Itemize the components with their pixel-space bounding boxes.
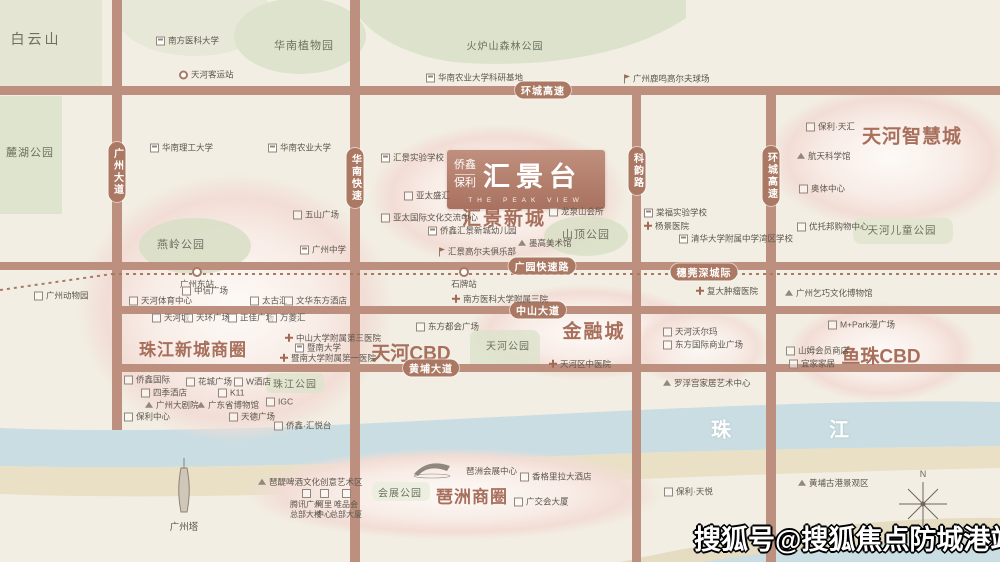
poi-label: 汇景实验学校 [393,154,444,163]
poi-label: 华南理工大学 [162,144,213,153]
poi-label: 暨南大学 [307,344,341,353]
park-label: 天河儿童公园 [868,223,937,238]
logo-brand-bottom: 保利 [454,177,476,190]
poi-label: 杨景医院 [655,222,689,231]
poi-label: 天河体育中心 [141,297,192,306]
poi-label: 华南农业大学科研基地 [438,74,523,83]
station-marker [459,267,469,277]
poi: 南方医科大学 [156,37,219,46]
poi-label: 琶醍啤酒文化创意艺术区 [269,478,363,487]
building-icon [293,211,302,220]
landmark-icon [663,380,671,386]
poi-label: K11 [230,389,245,398]
building-icon [266,398,275,407]
poi-label: 山姆会员商店 [798,347,849,356]
poi: 亚太国际文化交流中心 [381,214,478,223]
poi-label: 侨鑫汇景新城幼儿园 [440,227,517,236]
poi: 保利·天悦 [664,488,713,497]
poi: 天环广场 [184,314,230,323]
poi-label: 棠福实验学校 [656,209,707,218]
poi: 侨鑫汇景新城幼儿园 [428,227,517,236]
building-icon [664,488,673,497]
district-label: 天河智慧城 [862,122,962,149]
road-label-pill: 中山大道 [510,302,566,319]
poi: 复大肿瘤医院 [696,287,758,296]
poi-label: 广州鹿鸣高尔夫球场 [633,75,710,84]
poi: 天河区中医院 [549,360,611,369]
school-icon [295,344,304,353]
poi: 东方都会广场 [416,323,479,332]
road-label-pill: 穗莞深城际 [671,264,738,281]
poi-label: 南方医科大学附属三院 [463,295,548,304]
poi-label: 侨鑫·汇悦台 [286,422,331,431]
building-icon [218,389,227,398]
hospital-icon [644,222,652,230]
poi: 奥体中心 [799,185,845,194]
poi-label: W酒店 [246,378,271,387]
school-icon [150,144,159,153]
building-icon [186,378,195,387]
river-name-label: 江 [829,414,851,443]
poi: 中山大学附属第三医院 [285,334,381,343]
poi-label: 奥体中心 [811,185,845,194]
poi-label: 四季酒店 [153,389,187,398]
poi: 琶洲会展中心 [466,467,517,476]
park-label: 白云山 [11,29,62,49]
poi: 暨南大学 [295,344,341,353]
building-icon [549,208,558,217]
poi-label: 五山广场 [305,211,339,220]
building-icon [141,389,150,398]
building-icon [268,314,277,323]
landmark-icon [798,480,806,486]
station-marker [192,267,202,277]
landmark-icon [197,402,205,408]
watermark: 搜狐号@搜狐焦点防城港站 [694,518,1000,557]
poi-label: 暨南大学附属第一医院 [291,354,376,363]
building-icon [797,223,806,232]
school-icon [644,209,653,218]
poi: 广州乞巧文化博物馆 [785,289,873,298]
poi: K11 [218,389,245,398]
poi-label: 黄埔古港景观区 [809,479,869,488]
building-icon [828,321,837,330]
landmark-icon [797,153,805,159]
location-map: 侨鑫 保利 汇景台 THE PEAK VIEW N 搜狐号@搜狐焦点防城港站 汇… [0,0,1000,562]
building-icon [416,323,425,332]
poi: M+Park漫广场 [828,321,895,330]
hospital-icon [696,287,704,295]
hospital-icon [549,360,557,368]
station-label: 石牌站 [451,278,477,290]
poi: 天河客运站 [179,71,234,80]
compass-north-label: N [920,469,927,479]
building-icon [234,378,243,387]
school-icon [428,227,437,236]
building-icon [182,287,191,296]
poi: 优托邦购物中心 [797,223,869,232]
poi-label: 香格里拉大酒店 [532,473,592,482]
road-label-pill: 环城高速 [763,146,780,206]
school-icon [300,246,309,255]
poi: 宜家家居 [789,360,835,369]
district-label: 琶洲商圈 [436,483,508,508]
poi: 香格里拉大酒店 [520,473,592,482]
poi-label: 侨鑫国际 [136,376,170,385]
poi-label: 航天科学馆 [808,152,851,161]
road-label-pill: 华南快速 [347,148,364,208]
poi-label: 南方医科大学 [168,37,219,46]
building-icon [789,360,798,369]
poi-label: 复大肿瘤医院 [707,287,758,296]
poi: 暨南大学附属第一医院 [280,354,376,363]
road-label-pill: 科韵路 [629,147,646,195]
park-label: 燕岭公园 [157,236,205,252]
landmark-icon [518,240,526,246]
poi: 山姆会员商店 [786,347,849,356]
logo-brand-top: 侨鑫 [454,159,476,172]
building-icon [284,297,293,306]
building-icon [663,328,672,337]
project-logo: 侨鑫 保利 汇景台 THE PEAK VIEW [447,150,605,209]
building-icon [786,347,795,356]
poi: 天德广场 [229,413,275,422]
park-label: 火炉山森林公园 [467,38,544,53]
district-label: 鱼珠CBD [841,342,920,369]
poi-label: 天德广场 [241,413,275,422]
golf-icon [437,248,445,257]
poi-label: M+Park漫广场 [840,321,895,330]
poi: 航天科学馆 [797,152,851,161]
poi-label: 优托邦购物中心 [809,223,869,232]
poi-label: 广州动物园 [46,292,89,301]
poi: 侨鑫国际 [124,376,170,385]
poi: 中信广场 [182,287,228,296]
park-label: 华南植物园 [274,37,334,53]
poi-label: 宜家家居 [801,360,835,369]
poi: 五山广场 [293,211,339,220]
road-label-pill: 广州大道 [109,142,126,202]
building-icon [229,413,238,422]
building-icon [381,214,390,223]
road-label-pill: 黄埔大道 [403,360,459,377]
building-icon [228,314,237,323]
building-icon [184,314,193,323]
road-label-pill: 广园快速路 [509,258,576,275]
logo-project-name: 汇景台 [483,155,582,194]
poi: 保利中心 [124,413,170,422]
poi: 清华大学附属中学湾区学校 [679,235,793,244]
park-label: 麓湖公园 [6,144,54,160]
building-icon [302,489,311,498]
building-icon [152,314,161,323]
poi: 广东省博物馆 [197,401,259,410]
poi: 汇景高尔夫俱乐部 [437,248,516,257]
poi: 南方医科大学附属三院 [452,295,548,304]
poi-label: 琶洲会展中心 [466,467,517,476]
poi-label: 中信广场 [194,287,228,296]
poi-label: 花城广场 [198,378,232,387]
park-label: 天河公园 [486,338,530,353]
poi-label: 广州乞巧文化博物馆 [796,289,873,298]
poi-label: 墨高美术馆 [529,239,572,248]
poi: 华南农业大学 [268,144,331,153]
building-icon [34,292,43,301]
hospital-icon [285,334,293,342]
building-icon [250,297,259,306]
poi: 墨高美术馆 [518,239,572,248]
poi-label: 天环广场 [196,314,230,323]
poi: 汇景实验学校 [381,154,444,163]
poi: 太古汇 [250,297,288,306]
poi-label: 东方国际商业广场 [675,341,743,350]
poi-label: 东方都会广场 [428,323,479,332]
building-icon [124,376,133,385]
poi-label: 汇景高尔夫俱乐部 [448,248,516,257]
poi: W酒店 [234,378,271,387]
poi-label: 文华东方酒店 [296,297,347,306]
poi: 文华东方酒店 [284,297,347,306]
building-icon [520,473,529,482]
poi-label: 保利·天悦 [676,488,713,497]
park-label: 会展公园 [378,485,422,500]
landmark-icon [258,479,266,485]
poi: 杨景医院 [644,222,689,231]
building-icon [124,413,133,422]
poi: 华南农业大学科研基地 [426,74,523,83]
landmark-icon [785,290,793,296]
golf-icon [622,75,630,84]
school-icon [381,154,390,163]
hospital-icon [280,354,288,362]
poi-label: 保利·天汇 [818,123,855,132]
building-icon [799,185,808,194]
poi-label: 唯品会 总部大厦 [330,500,362,521]
poi-label: 万菱汇 [280,314,306,323]
district-label: 金融城 [562,317,625,344]
poi-label: 清华大学附属中学湾区学校 [691,235,793,244]
poi: 花城广场 [186,378,232,387]
building-icon [663,341,672,350]
poi-label: 天河客运站 [191,71,234,80]
poi: 广州大剧院 [145,401,199,410]
school-icon [156,37,165,46]
poi-label: 亚太盛汇 [416,192,450,201]
school-icon [679,235,688,244]
building-icon [342,489,351,498]
park-label: 珠江公园 [273,376,317,391]
poi: 侨鑫·汇悦台 [274,422,331,431]
poi: IGC [266,398,293,407]
district-label: 珠江新城商圈 [139,336,247,361]
poi: 广州鹿鸣高尔夫球场 [622,75,710,84]
road-label-pill: 环城高速 [515,82,571,99]
poi: 棠福实验学校 [644,209,707,218]
poi: 广交会大厦 [514,498,569,507]
building-icon [320,489,329,498]
poi: 亚太盛汇 [404,192,450,201]
poi: 龙泉山会所 [549,208,604,217]
poi: 四季酒店 [141,389,187,398]
school-icon [426,74,435,83]
poi: 华南理工大学 [150,144,213,153]
poi: 黄埔古港景观区 [798,479,869,488]
building-icon [806,123,815,132]
poi-label: 广东省博物馆 [208,401,259,410]
poi-label: 保利中心 [136,413,170,422]
poi-label: 广州中学 [312,246,346,255]
logo-brand-divider-line [455,174,475,175]
poi-label: 中山大学附属第三医院 [296,334,381,343]
poi: 万菱汇 [268,314,306,323]
poi: 罗浮宫家居艺术中心 [663,379,751,388]
building-icon [274,422,283,431]
poi-label: 罗浮宫家居艺术中心 [674,379,751,388]
poi: 保利·天汇 [806,123,855,132]
poi-label: IGC [278,398,293,407]
poi: 唯品会 总部大厦 [330,489,362,521]
poi-label: 天河区中医院 [560,360,611,369]
landmark-label: 广州塔 [170,519,199,533]
poi: 琶醍啤酒文化创意艺术区 [258,478,363,487]
poi-label: 广交会大厦 [526,498,569,507]
poi: 广州动物园 [34,292,89,301]
building-icon [404,192,413,201]
poi-label: 广州大剧院 [156,401,199,410]
river-name-label: 珠 [711,414,733,443]
building-icon [129,297,138,306]
building-icon [514,498,523,507]
poi: 广州中学 [300,246,346,255]
station-icon [179,71,188,80]
poi-label: 天河沃尔玛 [675,328,718,337]
poi: 天河沃尔玛 [663,328,718,337]
poi-label: 亚太国际文化交流中心 [393,214,478,223]
poi: 东方国际商业广场 [663,341,743,350]
poi-label: 龙泉山会所 [561,208,604,217]
landmark-icon [145,402,153,408]
poi-label: 华南农业大学 [280,144,331,153]
poi: 天河体育中心 [129,297,192,306]
logo-brand: 侨鑫 保利 [454,159,476,189]
hospital-icon [452,295,460,303]
school-icon [268,144,277,153]
